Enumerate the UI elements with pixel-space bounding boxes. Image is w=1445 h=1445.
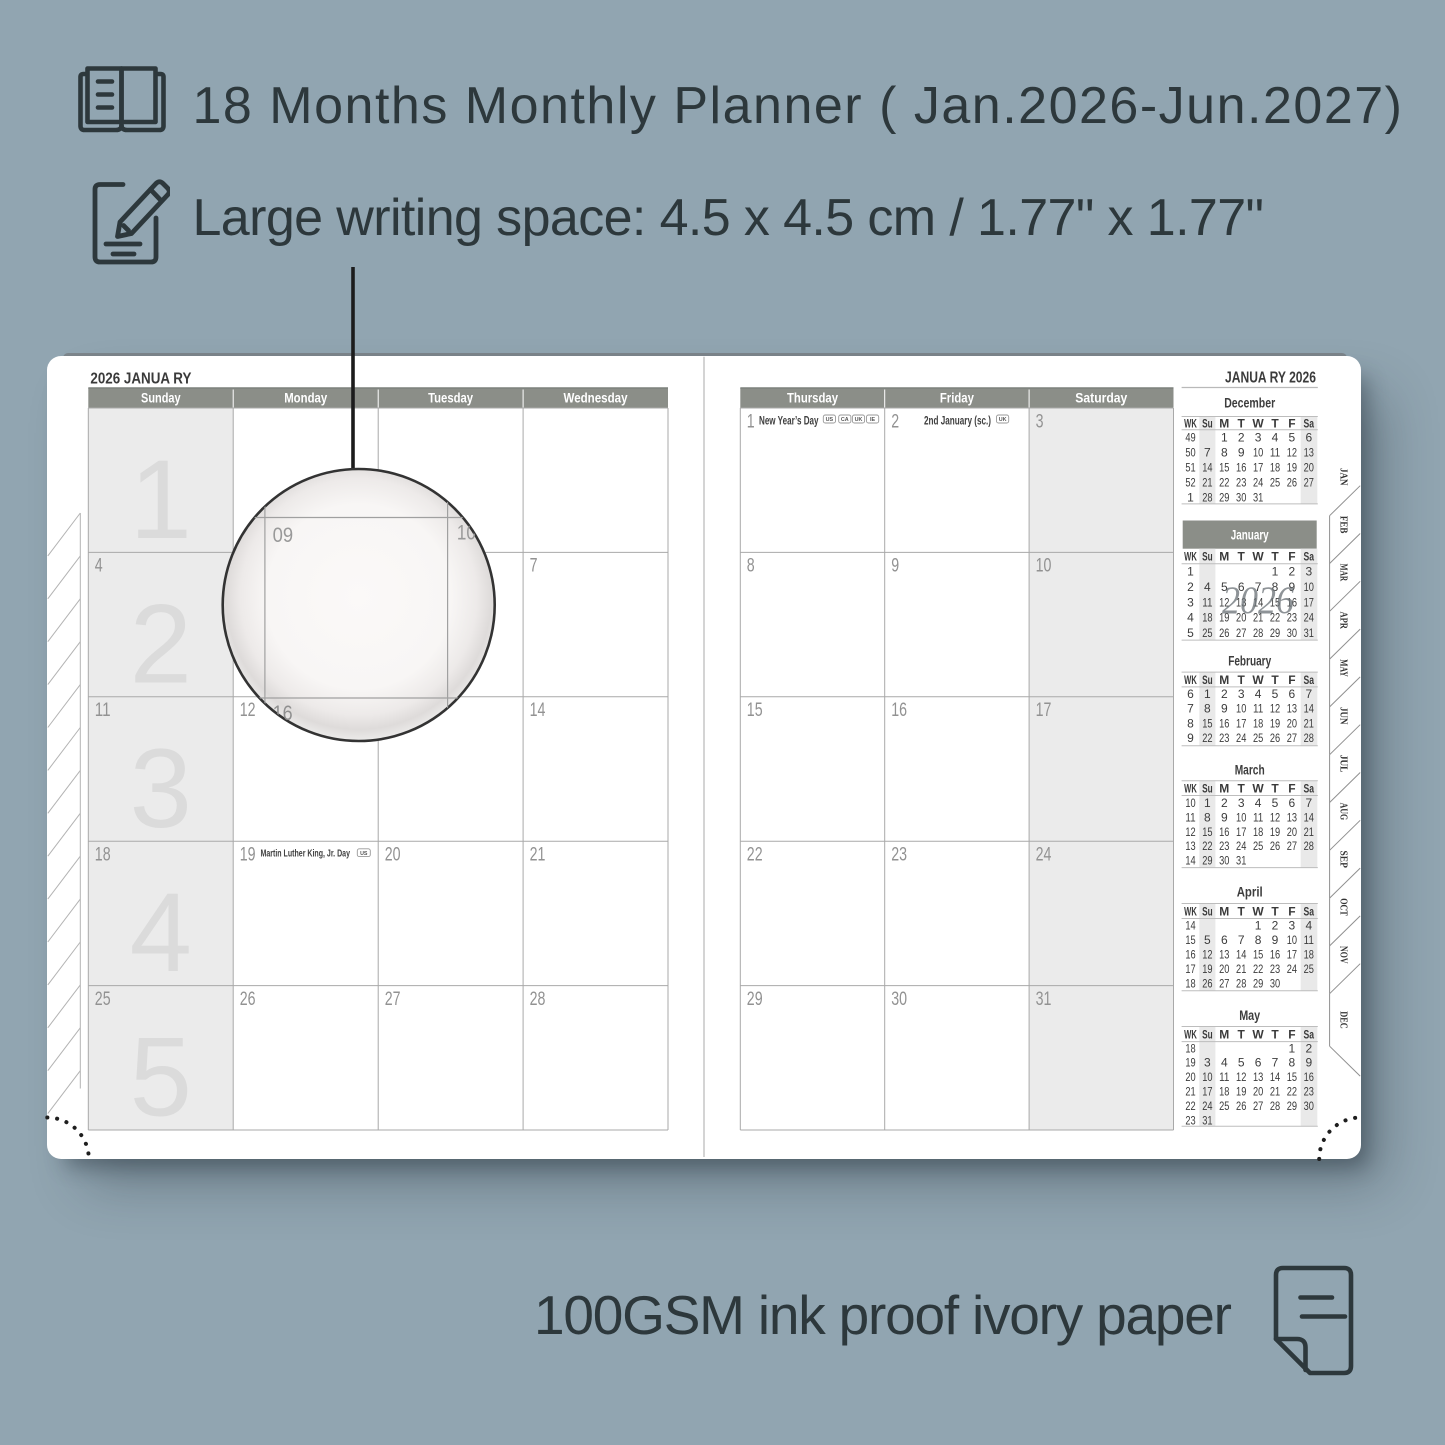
svg-text:WK: WK [1184, 417, 1197, 431]
svg-text:3: 3 [1238, 796, 1245, 810]
svg-text:Su: Su [1202, 1027, 1213, 1041]
svg-text:18: 18 [1270, 461, 1281, 475]
svg-text:AUG: AUG [1338, 803, 1349, 821]
svg-text:30: 30 [1236, 491, 1247, 505]
svg-text:Thursday: Thursday [787, 391, 838, 406]
svg-text:22: 22 [1219, 476, 1230, 490]
svg-text:8: 8 [1204, 810, 1211, 824]
svg-text:T: T [1271, 417, 1279, 431]
svg-text:22: 22 [1253, 962, 1264, 976]
svg-text:December: December [1224, 396, 1276, 411]
svg-text:30: 30 [1287, 626, 1298, 640]
svg-text:12: 12 [1185, 825, 1196, 839]
svg-text:13: 13 [1219, 948, 1230, 962]
svg-text:6: 6 [1255, 1056, 1262, 1070]
svg-text:7: 7 [1305, 687, 1312, 701]
svg-text:17: 17 [1185, 962, 1196, 976]
svg-text:13: 13 [1287, 702, 1298, 716]
svg-text:6: 6 [1289, 796, 1296, 810]
svg-text:6: 6 [1289, 687, 1296, 701]
svg-text:F: F [1288, 1027, 1295, 1041]
svg-text:17: 17 [1036, 700, 1052, 721]
svg-text:14: 14 [1185, 919, 1196, 933]
svg-text:21: 21 [1270, 1085, 1281, 1099]
svg-text:28: 28 [1304, 731, 1315, 745]
svg-text:6: 6 [1187, 687, 1194, 701]
svg-text:F: F [1288, 417, 1295, 431]
svg-text:M: M [1219, 417, 1229, 431]
svg-text:18: 18 [1185, 1041, 1196, 1055]
svg-text:4: 4 [1204, 580, 1211, 594]
svg-text:24: 24 [1236, 839, 1247, 853]
svg-text:21: 21 [1304, 825, 1315, 839]
svg-text:9: 9 [1305, 1056, 1312, 1070]
svg-text:25: 25 [95, 989, 111, 1010]
svg-text:1: 1 [1187, 491, 1194, 505]
svg-text:26: 26 [1236, 1099, 1247, 1113]
svg-text:12: 12 [1270, 702, 1281, 716]
svg-text:Sa: Sa [1304, 417, 1315, 431]
svg-text:27: 27 [1253, 1099, 1264, 1113]
svg-text:M: M [1219, 673, 1229, 687]
svg-text:21: 21 [1236, 962, 1247, 976]
svg-text:18: 18 [95, 845, 111, 866]
svg-text:20: 20 [1185, 1070, 1196, 1084]
svg-text:3: 3 [1305, 565, 1312, 579]
svg-text:F: F [1288, 673, 1295, 687]
svg-text:10: 10 [1304, 580, 1315, 594]
svg-text:11: 11 [1304, 933, 1315, 947]
svg-text:Su: Su [1202, 417, 1213, 431]
svg-text:11: 11 [1202, 595, 1213, 609]
svg-text:UK: UK [999, 417, 1007, 423]
svg-text:30: 30 [1219, 854, 1230, 868]
svg-text:4: 4 [95, 556, 103, 577]
svg-text:11: 11 [1253, 702, 1264, 716]
svg-text:2: 2 [1221, 687, 1228, 701]
svg-text:13: 13 [1287, 810, 1298, 824]
svg-text:1: 1 [747, 411, 755, 432]
svg-text:50: 50 [1185, 446, 1196, 460]
svg-text:19: 19 [1270, 716, 1281, 730]
svg-text:2: 2 [130, 581, 192, 706]
svg-text:12: 12 [1270, 810, 1281, 824]
svg-text:W: W [1252, 782, 1264, 796]
svg-text:27: 27 [1287, 731, 1298, 745]
svg-text:7: 7 [1238, 933, 1245, 947]
svg-text:17: 17 [1236, 716, 1247, 730]
svg-text:28: 28 [1304, 839, 1315, 853]
svg-text:16: 16 [1304, 1070, 1315, 1084]
svg-text:1: 1 [1289, 1041, 1296, 1055]
svg-text:24: 24 [1304, 611, 1315, 625]
svg-text:2: 2 [1187, 580, 1194, 594]
svg-text:14: 14 [1304, 702, 1315, 716]
svg-text:5: 5 [1289, 431, 1296, 445]
svg-text:20: 20 [1304, 461, 1315, 475]
svg-text:SEP: SEP [1338, 850, 1349, 868]
svg-text:21: 21 [1304, 716, 1315, 730]
svg-text:T: T [1271, 782, 1279, 796]
svg-text:29: 29 [747, 989, 763, 1010]
svg-text:2: 2 [1305, 1041, 1312, 1055]
svg-text:26: 26 [1202, 976, 1213, 990]
svg-text:16: 16 [1270, 948, 1281, 962]
svg-text:WK: WK [1184, 673, 1197, 687]
svg-text:1: 1 [1272, 565, 1279, 579]
svg-text:WK: WK [1184, 904, 1197, 918]
svg-text:27: 27 [1219, 976, 1230, 990]
svg-text:March: March [1235, 763, 1265, 778]
svg-text:May: May [1239, 1008, 1260, 1023]
svg-text:JUL: JUL [1338, 755, 1349, 773]
svg-text:4: 4 [1221, 1056, 1228, 1070]
svg-text:5: 5 [1238, 1056, 1245, 1070]
svg-text:15: 15 [747, 700, 763, 721]
svg-text:8: 8 [1204, 702, 1211, 716]
svg-text:15: 15 [1287, 1070, 1298, 1084]
svg-text:25: 25 [1270, 476, 1281, 490]
svg-text:WK: WK [1184, 782, 1197, 796]
svg-text:28: 28 [530, 989, 546, 1010]
svg-text:13: 13 [1185, 839, 1196, 853]
svg-text:8: 8 [1221, 446, 1228, 460]
svg-text:15: 15 [1219, 461, 1230, 475]
svg-text:19: 19 [1287, 461, 1298, 475]
svg-text:24: 24 [1253, 476, 1264, 490]
svg-text:15: 15 [1185, 933, 1196, 947]
svg-text:14: 14 [1270, 1070, 1281, 1084]
svg-text:M: M [1219, 549, 1229, 563]
svg-text:M: M [1219, 1027, 1229, 1041]
svg-text:23: 23 [1219, 839, 1230, 853]
svg-text:3: 3 [1289, 919, 1296, 933]
svg-text:Friday: Friday [940, 391, 974, 406]
svg-text:Martin Luther King, Jr. Day: Martin Luther King, Jr. Day [261, 849, 351, 860]
svg-text:3: 3 [130, 726, 192, 851]
svg-text:10: 10 [1202, 1070, 1213, 1084]
svg-text:WK: WK [1184, 1027, 1197, 1041]
svg-text:JUN: JUN [1338, 707, 1349, 725]
svg-text:W: W [1252, 1027, 1264, 1041]
svg-text:29: 29 [1253, 976, 1264, 990]
svg-text:29: 29 [1270, 626, 1281, 640]
svg-text:1: 1 [1255, 919, 1262, 933]
svg-text:22: 22 [1287, 1085, 1298, 1099]
svg-text:T: T [1238, 549, 1246, 563]
svg-text:Monday: Monday [284, 391, 327, 406]
svg-text:15: 15 [1253, 948, 1264, 962]
svg-text:3: 3 [1238, 687, 1245, 701]
svg-text:22: 22 [1185, 1099, 1196, 1113]
svg-text:8: 8 [1187, 716, 1194, 730]
svg-text:14: 14 [530, 700, 546, 721]
svg-text:W: W [1252, 549, 1264, 563]
svg-text:11: 11 [1253, 810, 1264, 824]
svg-text:27: 27 [1236, 626, 1247, 640]
svg-text:Sa: Sa [1304, 782, 1315, 796]
svg-text:26: 26 [1270, 839, 1281, 853]
svg-text:24: 24 [1236, 731, 1247, 745]
svg-text:New Year’s Day: New Year’s Day [759, 416, 819, 428]
svg-text:25: 25 [1219, 1099, 1230, 1113]
svg-text:WK: WK [1184, 549, 1197, 563]
svg-text:23: 23 [891, 845, 907, 866]
svg-text:18 Months Monthly Planner ( Ja: 18 Months Monthly Planner ( Jan.2026-Jun… [193, 77, 1403, 135]
svg-text:Wednesday: Wednesday [564, 391, 628, 406]
svg-text:22: 22 [747, 845, 763, 866]
svg-text:26: 26 [240, 989, 256, 1010]
svg-text:Sa: Sa [1304, 549, 1315, 563]
svg-text:21: 21 [1202, 476, 1213, 490]
svg-text:APR: APR [1338, 611, 1349, 629]
svg-text:09: 09 [273, 523, 294, 547]
svg-text:20: 20 [1253, 1085, 1264, 1099]
svg-text:5: 5 [130, 1015, 192, 1140]
svg-text:4: 4 [130, 870, 192, 995]
svg-text:18: 18 [1185, 976, 1196, 990]
svg-text:23: 23 [1219, 731, 1230, 745]
svg-text:10: 10 [1036, 556, 1052, 577]
svg-text:30: 30 [1304, 1099, 1315, 1113]
svg-text:18: 18 [1219, 1085, 1230, 1099]
svg-text:12: 12 [1287, 446, 1298, 460]
svg-text:30: 30 [1270, 976, 1281, 990]
svg-text:M: M [1219, 782, 1229, 796]
svg-text:31: 31 [1036, 989, 1052, 1010]
svg-text:9: 9 [1238, 446, 1245, 460]
svg-text:12: 12 [240, 700, 256, 721]
svg-text:20: 20 [1219, 962, 1230, 976]
svg-text:8: 8 [747, 556, 755, 577]
svg-text:20: 20 [385, 845, 401, 866]
svg-text:2026 JANUA RY: 2026 JANUA RY [90, 370, 191, 387]
svg-text:10: 10 [1236, 810, 1247, 824]
svg-text:20: 20 [1287, 825, 1298, 839]
svg-text:18: 18 [1253, 716, 1264, 730]
svg-text:16: 16 [891, 700, 907, 721]
svg-text:27: 27 [1287, 839, 1298, 853]
svg-text:15: 15 [1202, 825, 1213, 839]
svg-text:17: 17 [1236, 825, 1247, 839]
svg-text:3: 3 [1036, 411, 1044, 432]
svg-text:23: 23 [1270, 962, 1281, 976]
svg-text:12: 12 [1236, 1070, 1247, 1084]
svg-text:F: F [1288, 782, 1295, 796]
svg-text:28: 28 [1253, 626, 1264, 640]
svg-text:T: T [1271, 549, 1279, 563]
svg-text:8: 8 [1289, 1056, 1296, 1070]
svg-text:T: T [1238, 904, 1246, 918]
svg-text:Sa: Sa [1304, 673, 1315, 687]
svg-text:6: 6 [1221, 933, 1228, 947]
svg-text:29: 29 [1219, 491, 1230, 505]
svg-text:19: 19 [1270, 825, 1281, 839]
svg-text:T: T [1238, 782, 1246, 796]
svg-text:19: 19 [240, 845, 256, 866]
svg-text:1: 1 [1204, 687, 1211, 701]
svg-text:3: 3 [1255, 431, 1262, 445]
svg-text:1: 1 [1204, 796, 1211, 810]
svg-text:OCT: OCT [1338, 898, 1349, 916]
svg-text:20: 20 [1287, 716, 1298, 730]
svg-text:8: 8 [1255, 933, 1262, 947]
svg-text:February: February [1228, 654, 1271, 669]
svg-text:21: 21 [1185, 1085, 1196, 1099]
svg-text:10: 10 [1253, 446, 1264, 460]
svg-text:4: 4 [1255, 796, 1262, 810]
svg-text:26: 26 [1270, 731, 1281, 745]
svg-text:FEB: FEB [1338, 516, 1349, 534]
svg-text:US: US [826, 417, 834, 423]
svg-text:14: 14 [1185, 854, 1196, 868]
svg-text:MAY: MAY [1338, 659, 1349, 677]
svg-text:Tuesday: Tuesday [428, 391, 473, 406]
svg-text:24: 24 [1287, 962, 1298, 976]
svg-text:7: 7 [1204, 446, 1211, 460]
svg-text:7: 7 [1305, 796, 1312, 810]
svg-text:11: 11 [1219, 1070, 1230, 1084]
svg-text:Su: Su [1202, 549, 1213, 563]
svg-text:January: January [1231, 527, 1269, 542]
svg-text:17: 17 [1304, 595, 1315, 609]
svg-text:25: 25 [1304, 962, 1315, 976]
svg-text:26: 26 [1287, 476, 1298, 490]
svg-text:12: 12 [1202, 948, 1213, 962]
svg-text:Sunday: Sunday [141, 391, 181, 406]
svg-text:3: 3 [1204, 1056, 1211, 1070]
svg-text:22: 22 [1202, 839, 1213, 853]
svg-text:23: 23 [1185, 1113, 1196, 1127]
svg-text:24: 24 [1202, 1099, 1213, 1113]
svg-text:5: 5 [1272, 796, 1279, 810]
svg-text:19: 19 [1236, 1085, 1247, 1099]
svg-text:16: 16 [1219, 716, 1230, 730]
svg-text:MAR: MAR [1338, 564, 1349, 582]
svg-text:2: 2 [1221, 796, 1228, 810]
svg-text:18: 18 [1304, 948, 1315, 962]
svg-text:T: T [1238, 1027, 1246, 1041]
svg-text:Large writing space: 4.5 x 4.5: Large writing space: 4.5 x 4.5 cm / 1.77… [193, 189, 1265, 247]
svg-text:10: 10 [457, 521, 476, 545]
svg-text:W: W [1252, 904, 1264, 918]
svg-text:17: 17 [1253, 461, 1264, 475]
svg-text:4: 4 [1187, 611, 1194, 625]
svg-text:18: 18 [1253, 825, 1264, 839]
svg-text:5: 5 [1272, 687, 1279, 701]
svg-text:30: 30 [891, 989, 907, 1010]
svg-text:2: 2 [1272, 919, 1279, 933]
svg-text:W: W [1252, 417, 1264, 431]
svg-text:24: 24 [1036, 845, 1052, 866]
svg-text:13: 13 [1304, 446, 1315, 460]
svg-text:DEC: DEC [1338, 1011, 1349, 1029]
svg-text:2: 2 [1238, 431, 1245, 445]
svg-text:1: 1 [130, 437, 192, 562]
svg-text:18: 18 [1202, 611, 1213, 625]
svg-text:3: 3 [1187, 595, 1194, 609]
svg-text:7: 7 [1272, 1056, 1279, 1070]
svg-text:UK: UK [855, 417, 863, 423]
svg-text:1: 1 [1187, 565, 1194, 579]
svg-text:29: 29 [1287, 1099, 1298, 1113]
svg-text:US: US [360, 851, 368, 857]
svg-text:F: F [1288, 549, 1295, 563]
svg-text:49: 49 [1185, 431, 1196, 445]
svg-text:15: 15 [1202, 716, 1213, 730]
svg-text:NOV: NOV [1338, 946, 1349, 964]
svg-text:17: 17 [1202, 1085, 1213, 1099]
svg-text:27: 27 [385, 989, 401, 1010]
svg-text:31: 31 [1236, 854, 1247, 868]
svg-text:31: 31 [1253, 491, 1264, 505]
svg-text:16: 16 [1236, 461, 1247, 475]
svg-text:52: 52 [1185, 476, 1196, 490]
svg-text:IE: IE [870, 417, 875, 423]
svg-text:T: T [1271, 1027, 1279, 1041]
svg-text:16: 16 [1219, 825, 1230, 839]
svg-text:M: M [1219, 904, 1229, 918]
svg-text:2: 2 [1289, 565, 1296, 579]
svg-text:Sa: Sa [1304, 1027, 1315, 1041]
svg-text:23: 23 [1236, 476, 1247, 490]
svg-text:T: T [1271, 904, 1279, 918]
svg-text:9: 9 [1221, 810, 1228, 824]
svg-text:25: 25 [1253, 731, 1264, 745]
svg-text:CA: CA [841, 417, 849, 423]
svg-text:Saturday: Saturday [1075, 391, 1127, 406]
svg-text:22: 22 [1202, 731, 1213, 745]
svg-text:7: 7 [1187, 702, 1194, 716]
svg-text:Su: Su [1202, 782, 1213, 796]
svg-text:19: 19 [1202, 962, 1213, 976]
svg-text:31: 31 [1202, 1113, 1213, 1127]
svg-text:29: 29 [1202, 854, 1213, 868]
svg-text:T: T [1271, 673, 1279, 687]
svg-text:W: W [1252, 673, 1264, 687]
svg-text:1: 1 [1221, 431, 1228, 445]
svg-text:5: 5 [1187, 626, 1194, 640]
svg-text:100GSM ink proof ivory paper: 100GSM ink proof ivory paper [534, 1284, 1232, 1346]
svg-text:9: 9 [1187, 731, 1194, 745]
svg-text:11: 11 [1270, 446, 1281, 460]
svg-text:T: T [1238, 673, 1246, 687]
svg-text:31: 31 [1304, 626, 1315, 640]
svg-text:F: F [1288, 904, 1295, 918]
svg-text:11: 11 [1185, 810, 1196, 824]
svg-text:5: 5 [1204, 933, 1211, 947]
svg-text:27: 27 [1304, 476, 1315, 490]
svg-text:14: 14 [1304, 810, 1315, 824]
svg-text:17: 17 [1287, 948, 1298, 962]
svg-text:9: 9 [1221, 702, 1228, 716]
svg-text:4: 4 [1255, 687, 1262, 701]
svg-text:14: 14 [1202, 461, 1213, 475]
svg-text:13: 13 [1253, 1070, 1264, 1084]
svg-text:2nd January (sc.): 2nd January (sc.) [924, 416, 991, 428]
svg-text:25: 25 [1202, 626, 1213, 640]
svg-text:6: 6 [1305, 431, 1312, 445]
svg-text:19: 19 [1185, 1056, 1196, 1070]
svg-text:JAN: JAN [1338, 468, 1349, 486]
svg-text:Su: Su [1202, 904, 1213, 918]
svg-text:23: 23 [1304, 1085, 1315, 1099]
svg-text:9: 9 [1272, 933, 1279, 947]
svg-text:28: 28 [1236, 976, 1247, 990]
svg-text:7: 7 [530, 556, 538, 577]
svg-text:9: 9 [891, 556, 899, 577]
svg-text:25: 25 [1253, 839, 1264, 853]
